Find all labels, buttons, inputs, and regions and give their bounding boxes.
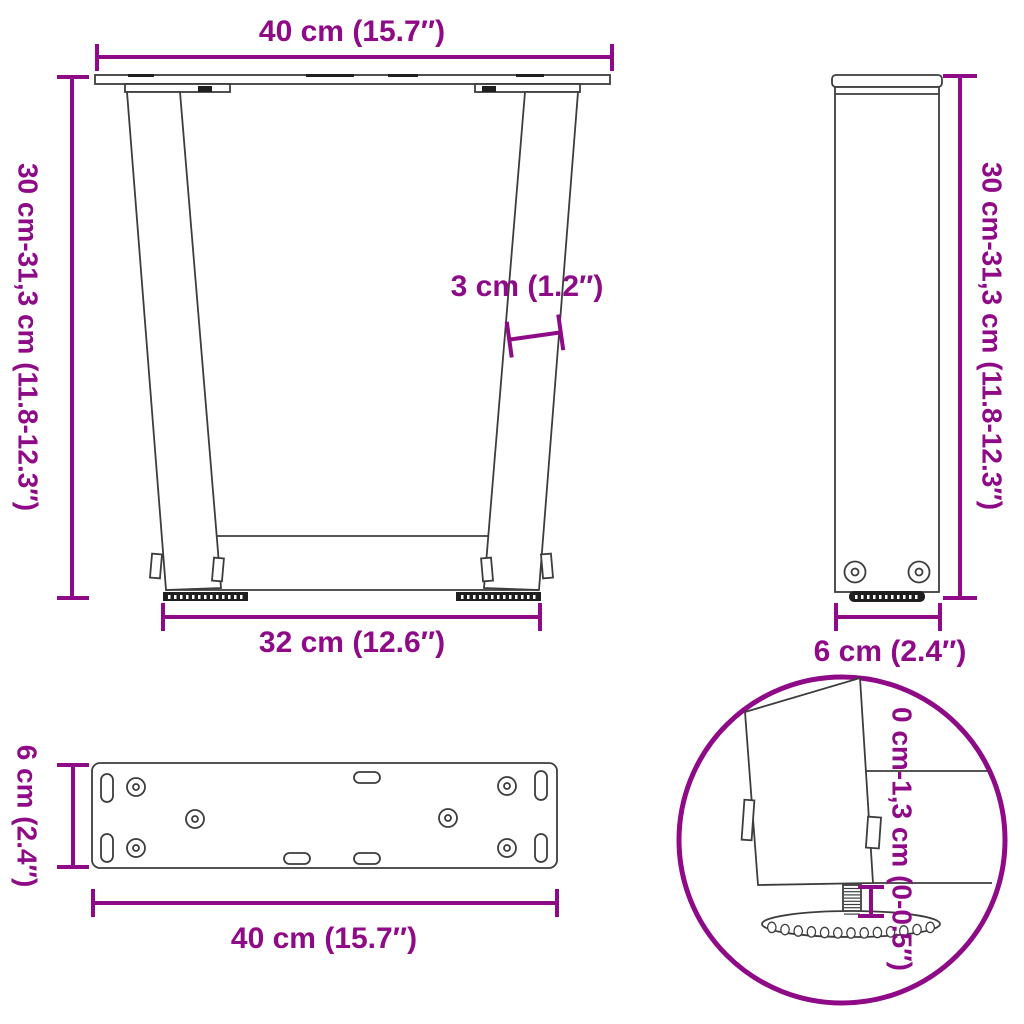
- front-left-dimension: [57, 77, 89, 598]
- plate-drawing: [92, 763, 557, 868]
- dimension-diagram: 40 cm (15.7″) 30 cm-31,3 cm (11.8-12.3″): [0, 0, 1024, 1024]
- foot-detail-view: 0 cm-1,3 cm (0-0.5″): [679, 677, 1005, 1003]
- diagram-svg: 40 cm (15.7″) 30 cm-31,3 cm (11.8-12.3″): [0, 0, 1024, 1024]
- plate-top-view: 6 cm (2.4″) 40 cm (15.7″): [12, 745, 558, 955]
- side-view: 30 cm-31,3 cm (11.8-12.3″) 6 cm (2.4″): [814, 75, 1008, 668]
- front-leg-thickness-label: 3 cm (1.2″): [451, 270, 604, 303]
- side-drawing: [832, 75, 942, 592]
- side-depth-label: 6 cm (2.4″): [814, 635, 967, 668]
- detail-adjust-label: 0 cm-1,3 cm (0-0.5″): [887, 707, 918, 971]
- side-height-label: 30 cm-31,3 cm (11.8-12.3″): [977, 162, 1008, 510]
- plate-depth-label: 6 cm (2.4″): [12, 745, 43, 888]
- front-drawing: [95, 75, 610, 590]
- front-top-dimension: [97, 44, 612, 71]
- front-view: 40 cm (15.7″) 30 cm-31,3 cm (11.8-12.3″): [13, 15, 613, 659]
- front-height-label: 30 cm-31,3 cm (11.8-12.3″): [13, 163, 44, 511]
- plate-left-dimension: [57, 765, 89, 867]
- plate-width-label: 40 cm (15.7″): [231, 922, 417, 955]
- side-right-dimension: [943, 76, 977, 598]
- front-top-width-label: 40 cm (15.7″): [259, 15, 445, 48]
- side-bottom-dimension: [836, 603, 940, 631]
- front-bottom-width-label: 32 cm (12.6″): [259, 626, 445, 659]
- side-foot-knurl: [849, 591, 925, 602]
- plate-bottom-dimension: [93, 889, 557, 917]
- front-foot-knurls: [163, 592, 541, 601]
